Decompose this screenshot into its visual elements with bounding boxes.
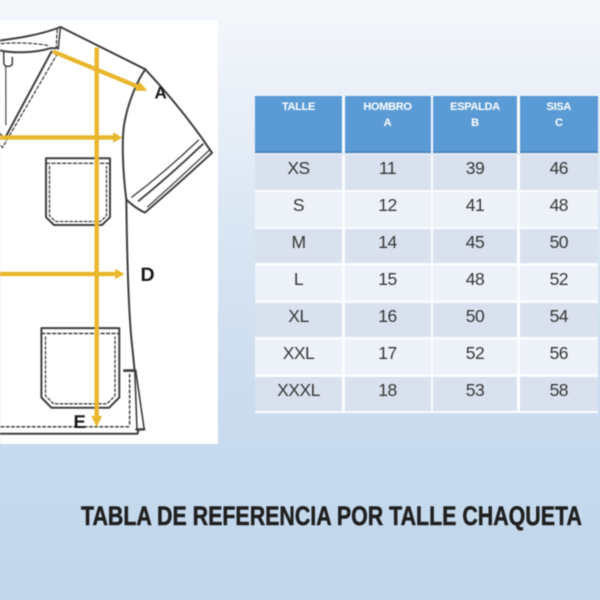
svg-text:E: E (74, 411, 86, 432)
svg-text:D: D (141, 264, 155, 286)
svg-text:A: A (155, 84, 167, 103)
